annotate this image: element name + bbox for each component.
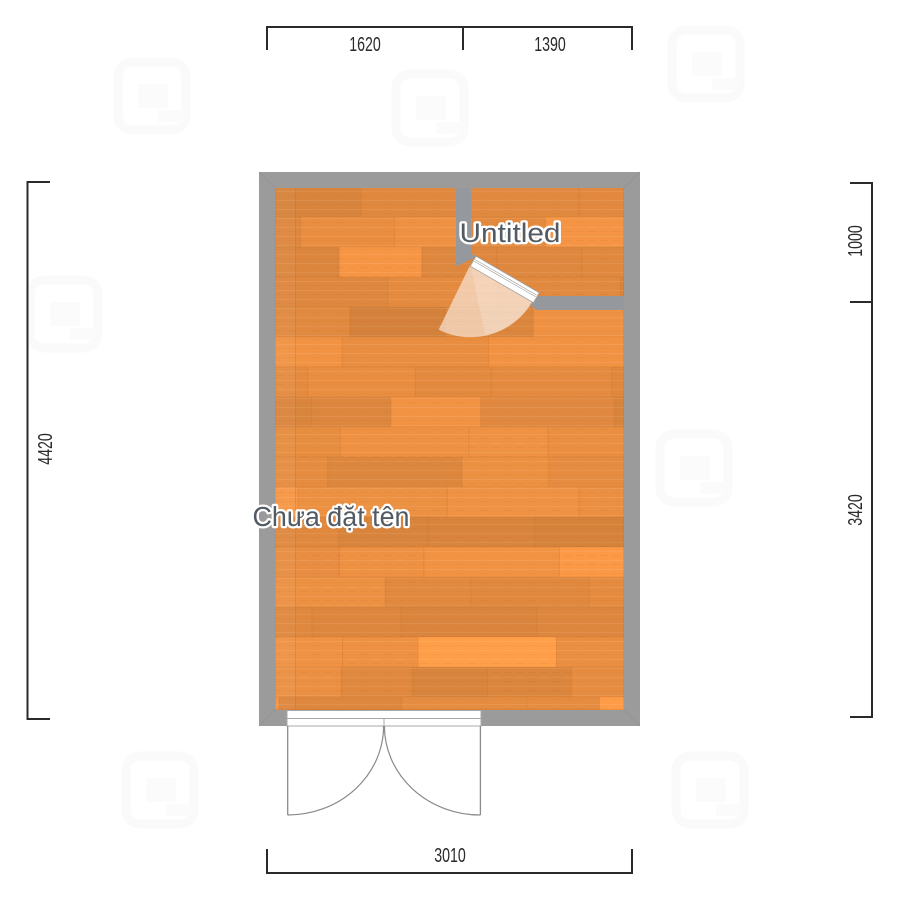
svg-text:1620: 1620 [349,34,381,56]
svg-text:3010: 3010 [434,845,466,867]
svg-text:4420: 4420 [35,433,57,465]
svg-text:3420: 3420 [845,494,867,526]
svg-text:Chưa đặt tên: Chưa đặt tên [253,501,410,532]
svg-text:Untitled: Untitled [460,218,561,248]
svg-text:1390: 1390 [534,34,566,56]
svg-text:1000: 1000 [845,225,867,257]
